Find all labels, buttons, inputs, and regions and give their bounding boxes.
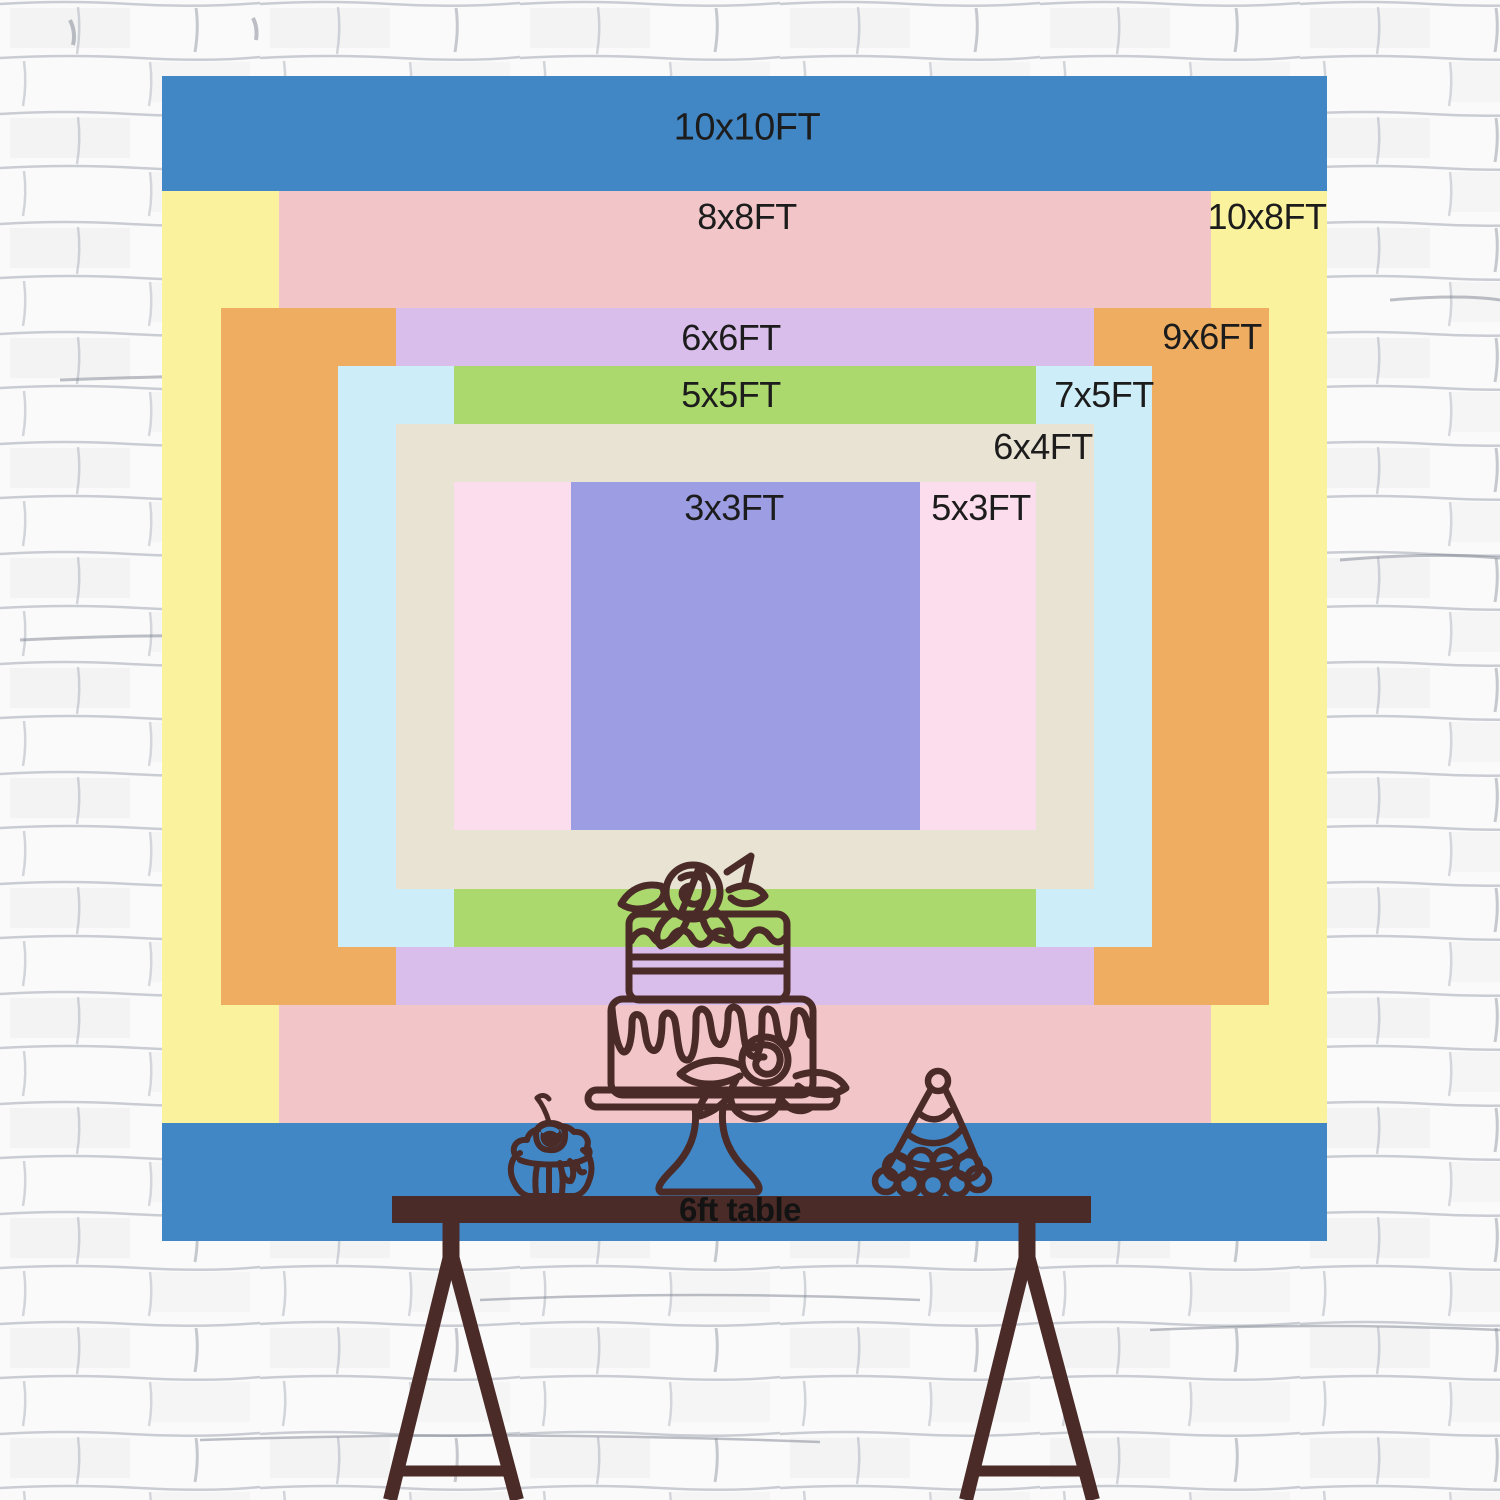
table-label: 6ft table — [679, 1191, 801, 1229]
table-legs — [0, 0, 1500, 1500]
scene: 10x10FT 10x8FT 8x8FT 9x6FT 6x6FT 7x5FT 5… — [0, 0, 1500, 1500]
right-trestle — [966, 1220, 1093, 1500]
left-trestle — [390, 1220, 517, 1500]
